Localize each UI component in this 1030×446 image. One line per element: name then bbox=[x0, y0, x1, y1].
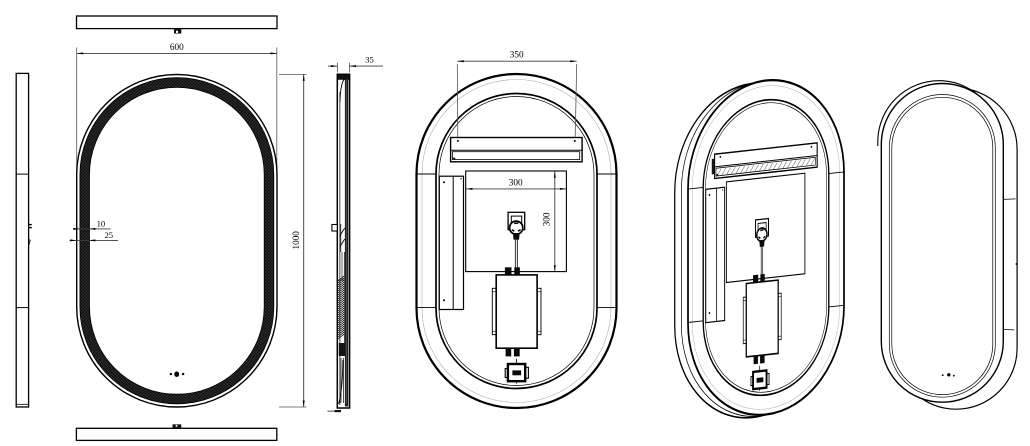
svg-text:1000: 1000 bbox=[291, 231, 301, 250]
svg-text:35: 35 bbox=[365, 55, 374, 65]
svg-text:25: 25 bbox=[105, 230, 114, 240]
svg-text:300: 300 bbox=[542, 212, 552, 226]
svg-text:350: 350 bbox=[510, 50, 524, 60]
svg-text:300: 300 bbox=[509, 178, 523, 188]
svg-text:10: 10 bbox=[97, 218, 106, 228]
svg-text:600: 600 bbox=[170, 42, 184, 52]
